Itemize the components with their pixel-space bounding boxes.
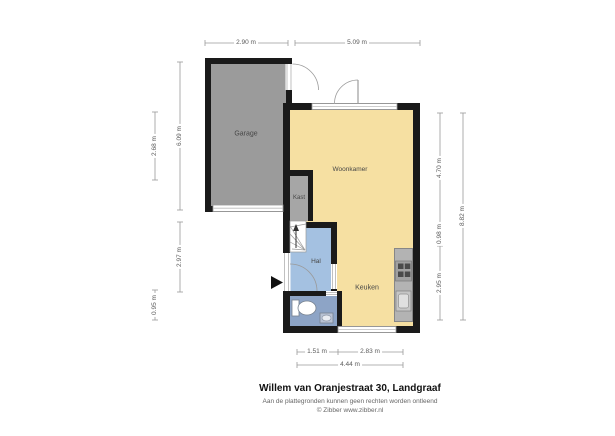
dim-left-1: 2.68 m [152,134,159,158]
room-label-kast: Kast [293,195,305,201]
dim-bottom-1: 1.51 m [305,349,329,356]
dim-left-4: 0.95 m [152,293,159,317]
garage-door [213,205,283,212]
toilet-sink-icon [320,313,333,323]
dim-bottom-2: 2.83 m [358,349,382,356]
dim-bottom-total: 4.44 m [338,362,362,369]
floorplan-page: Garage Woonkamer Kast Hal Keuken 2.90 m … [0,0,615,436]
copyright-text: © Zibber www.zibber.nl [140,407,560,414]
cooktop-icon [396,261,412,281]
entrance-arrow-icon [271,276,283,289]
page-title: Willem van Oranjestraat 30, Landgraaf [140,383,560,394]
staircase [290,221,306,252]
hal-keuken-door [331,264,337,289]
room-label-garage: Garage [234,131,257,138]
dimension-lines [152,40,466,368]
toilet-door [326,291,337,296]
room-label-woonkamer: Woonkamer [333,167,368,174]
window-bottom [338,327,396,333]
kitchen-sink-icon [396,291,411,311]
window-top [312,104,397,110]
dim-right-total: 8.82 m [460,204,467,228]
dim-left-2: 6.09 m [177,124,184,148]
disclaimer-text: Aan de plattegronden kunnen geen rechten… [140,398,560,405]
dim-top-house: 5.09 m [345,40,369,47]
garage-side-door [286,64,319,90]
plan-linework [0,0,615,436]
back-door-arc [335,80,359,104]
dim-top-garage: 2.90 m [234,40,258,47]
dim-right-2: 0.98 m [437,222,444,246]
dim-right-3: 2.95 m [437,271,444,295]
room-label-keuken: Keuken [355,285,379,292]
room-label-hal: Hal [311,259,321,266]
dim-left-3: 2.97 m [177,245,184,269]
dim-right-1: 4.70 m [437,156,444,180]
toilet-icon [292,300,316,316]
